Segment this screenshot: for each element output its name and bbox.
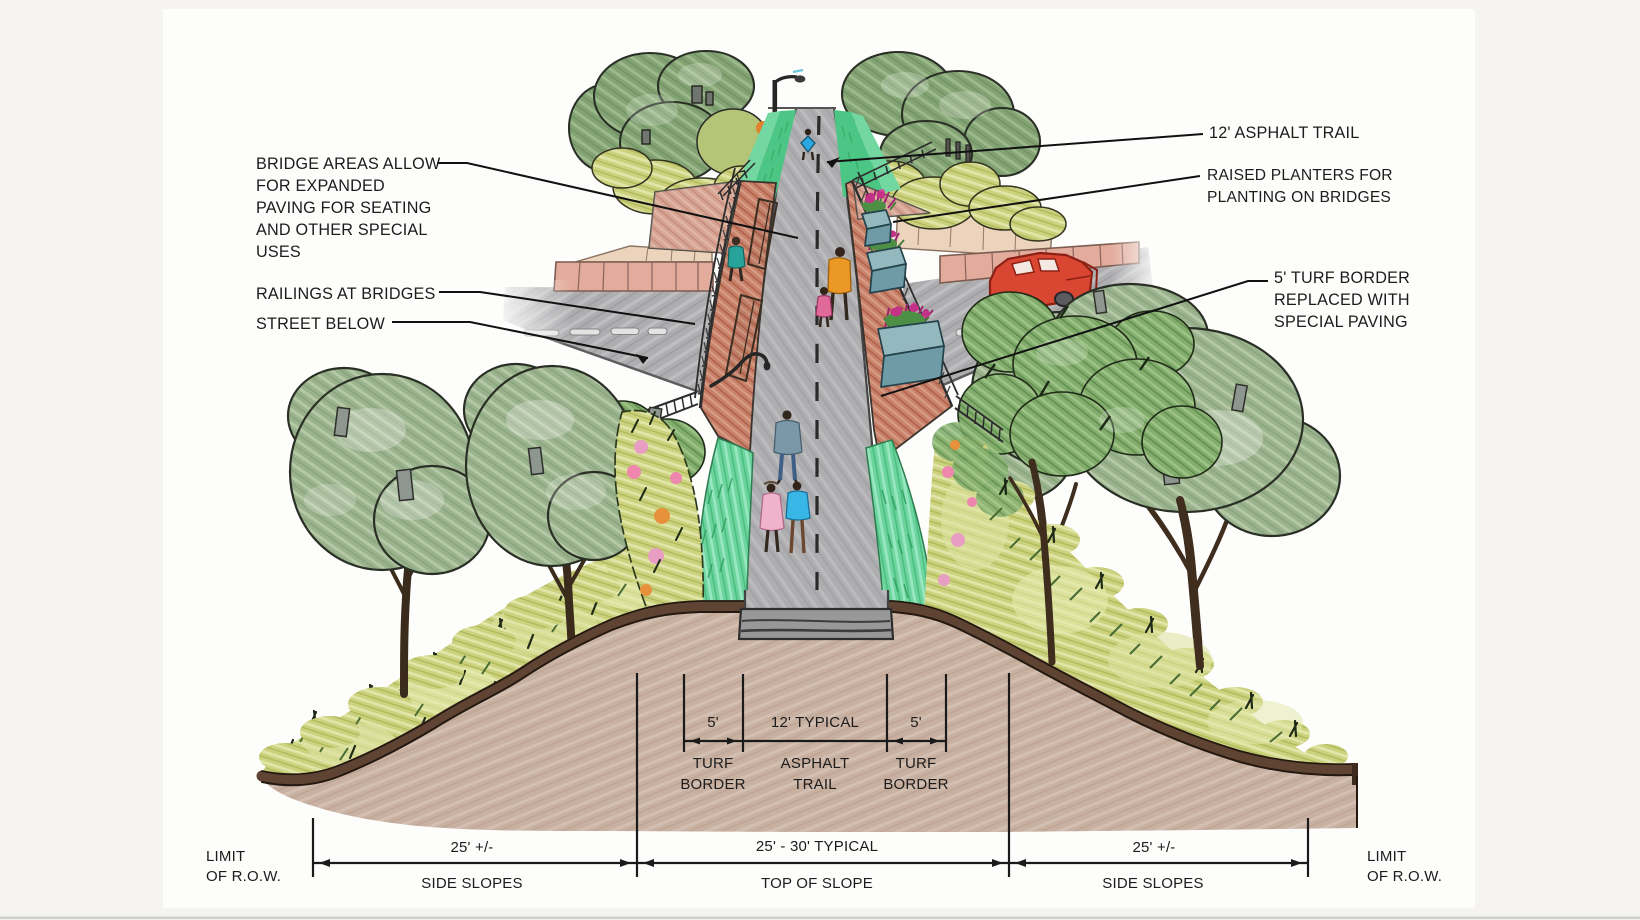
svg-text:RAILINGS AT BRIDGES: RAILINGS AT BRIDGES (256, 285, 436, 303)
svg-text:25' +/-: 25' +/- (1132, 839, 1175, 856)
svg-text:25' +/-: 25' +/- (450, 839, 493, 856)
svg-text:5': 5' (707, 714, 719, 731)
svg-text:REPLACED WITH: REPLACED WITH (1274, 291, 1410, 309)
svg-text:BORDER: BORDER (883, 776, 948, 793)
svg-text:25' - 30' TYPICAL: 25' - 30' TYPICAL (756, 838, 878, 855)
svg-text:5': 5' (910, 714, 922, 731)
svg-text:5' TURF BORDER: 5' TURF BORDER (1274, 269, 1410, 287)
svg-text:USES: USES (256, 243, 301, 261)
svg-text:PLANTING ON BRIDGES: PLANTING ON BRIDGES (1207, 189, 1391, 206)
svg-text:12' ASPHALT TRAIL: 12' ASPHALT TRAIL (1209, 124, 1359, 142)
svg-text:SIDE SLOPES: SIDE SLOPES (1102, 875, 1203, 892)
svg-text:ASPHALT: ASPHALT (781, 755, 850, 772)
svg-text:SIDE SLOPES: SIDE SLOPES (421, 875, 522, 892)
svg-text:TURF: TURF (896, 755, 937, 772)
svg-text:BORDER: BORDER (680, 776, 745, 793)
svg-text:AND OTHER SPECIAL: AND OTHER SPECIAL (256, 221, 428, 239)
svg-text:OF R.O.W.: OF R.O.W. (1367, 868, 1442, 885)
svg-text:RAISED PLANTERS FOR: RAISED PLANTERS FOR (1207, 167, 1393, 184)
svg-text:TURF: TURF (693, 755, 734, 772)
svg-text:LIMIT: LIMIT (1367, 848, 1406, 865)
svg-text:SPECIAL PAVING: SPECIAL PAVING (1274, 313, 1408, 331)
svg-text:STREET BELOW: STREET BELOW (256, 315, 385, 333)
svg-text:12' TYPICAL: 12' TYPICAL (771, 714, 859, 731)
svg-text:TOP OF SLOPE: TOP OF SLOPE (761, 875, 873, 892)
svg-text:TRAIL: TRAIL (793, 776, 837, 793)
svg-text:LIMIT: LIMIT (206, 848, 245, 865)
svg-text:BRIDGE AREAS ALLOW: BRIDGE AREAS ALLOW (256, 155, 441, 173)
svg-text:PAVING FOR SEATING: PAVING FOR SEATING (256, 199, 431, 217)
svg-text:OF R.O.W.: OF R.O.W. (206, 868, 281, 885)
svg-text:FOR EXPANDED: FOR EXPANDED (256, 177, 385, 195)
